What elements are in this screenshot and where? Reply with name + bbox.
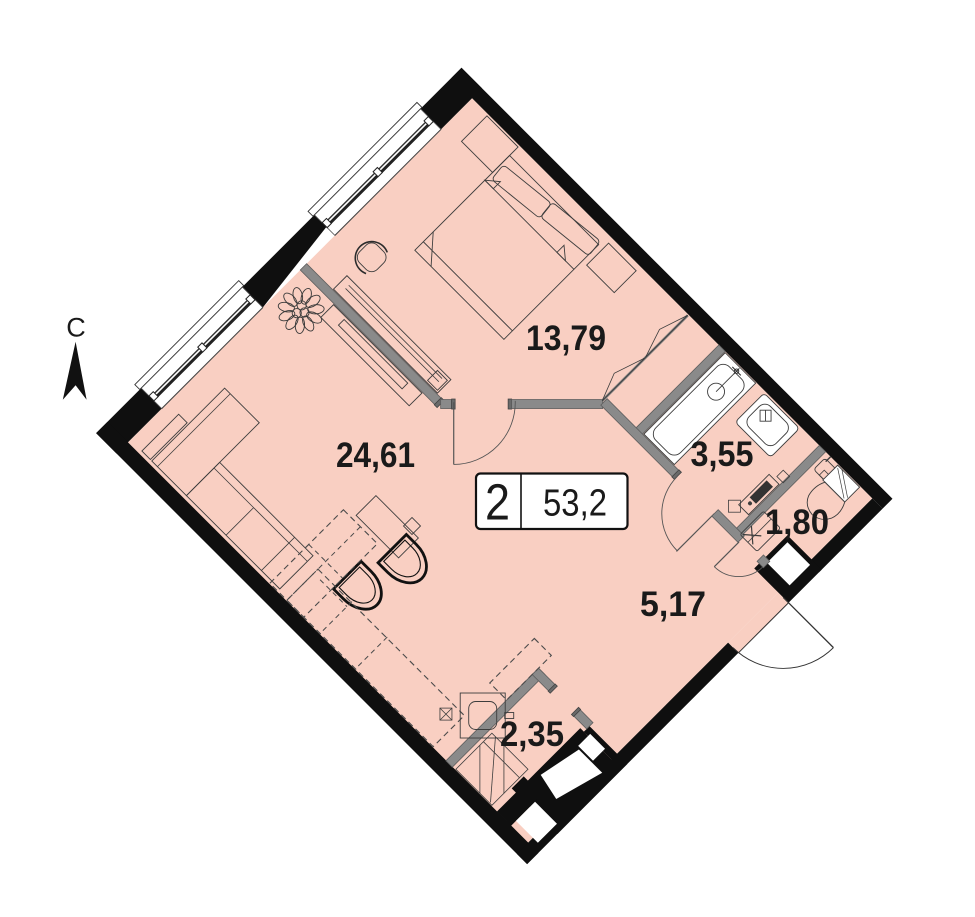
svg-text:2,35: 2,35 (500, 714, 564, 754)
svg-text:13,79: 13,79 (526, 318, 606, 358)
svg-text:С: С (66, 313, 86, 343)
svg-text:3,55: 3,55 (691, 434, 754, 474)
svg-text:5,17: 5,17 (640, 584, 706, 624)
svg-text:2: 2 (485, 473, 510, 530)
svg-text:1,80: 1,80 (765, 502, 829, 542)
svg-text:53,2: 53,2 (543, 483, 607, 525)
svg-text:24,61: 24,61 (336, 435, 415, 475)
